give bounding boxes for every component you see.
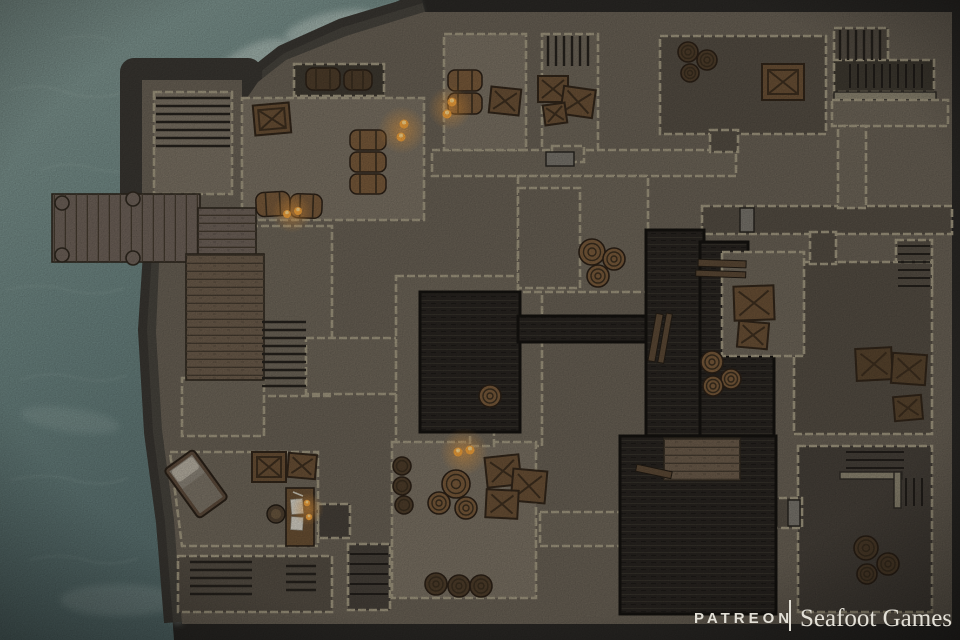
vignette — [0, 0, 960, 640]
map-canvas: PATREON Seafoot Games — [0, 0, 960, 640]
watermark-patreon: PATREON — [694, 610, 793, 627]
watermark-studio: Seafoot Games — [800, 605, 952, 632]
battle-map: PATREON Seafoot Games — [0, 0, 960, 640]
